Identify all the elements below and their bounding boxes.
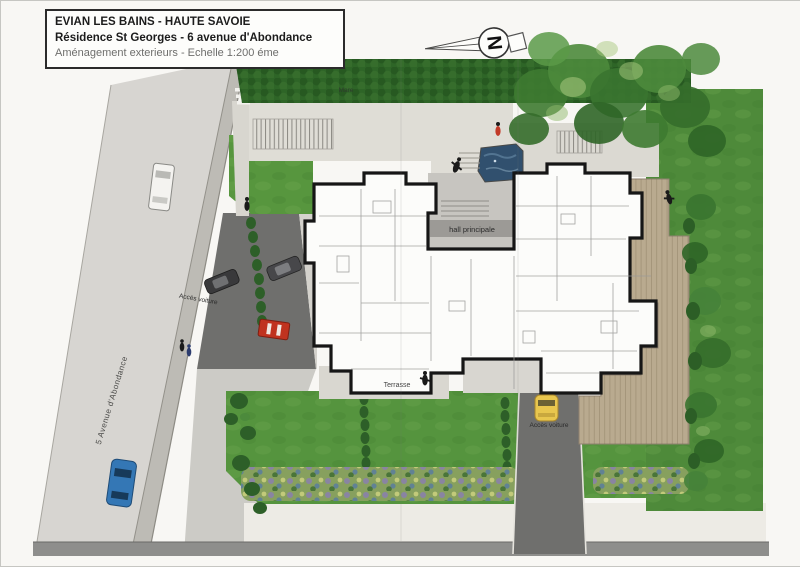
- scanned-site-plan-page: N Mare hall principale Terrasse Accès vo…: [0, 0, 800, 567]
- red-object: [258, 319, 290, 340]
- label-terrace: Terrasse: [384, 382, 411, 389]
- entrance-walkway: [428, 173, 518, 251]
- north-letter: N: [482, 35, 505, 52]
- stairs-west: [253, 119, 333, 149]
- car-yellow: [535, 395, 558, 421]
- label-car-access-south: Accès voiture: [529, 422, 568, 429]
- bottom-street-band: [33, 542, 769, 556]
- title-city: EVIAN LES BAINS - HAUTE SAVOIE: [55, 15, 335, 31]
- title-residence: Résidence St Georges - 6 avenue d'Abonda…: [55, 31, 335, 47]
- person-pond: [495, 122, 500, 136]
- label-main-hall: hall principale: [449, 225, 495, 234]
- title-block: EVIAN LES BAINS - HAUTE SAVOIE Résidence…: [45, 9, 345, 69]
- site-plan-drawing: N Mare hall principale Terrasse Accès vo…: [1, 1, 800, 566]
- paving-alcove: [463, 359, 541, 393]
- label-pond: Mare: [339, 87, 354, 94]
- person-path-west: [244, 197, 249, 211]
- title-scale: Aménagement exterieurs - Echelle 1:200 é…: [55, 46, 335, 61]
